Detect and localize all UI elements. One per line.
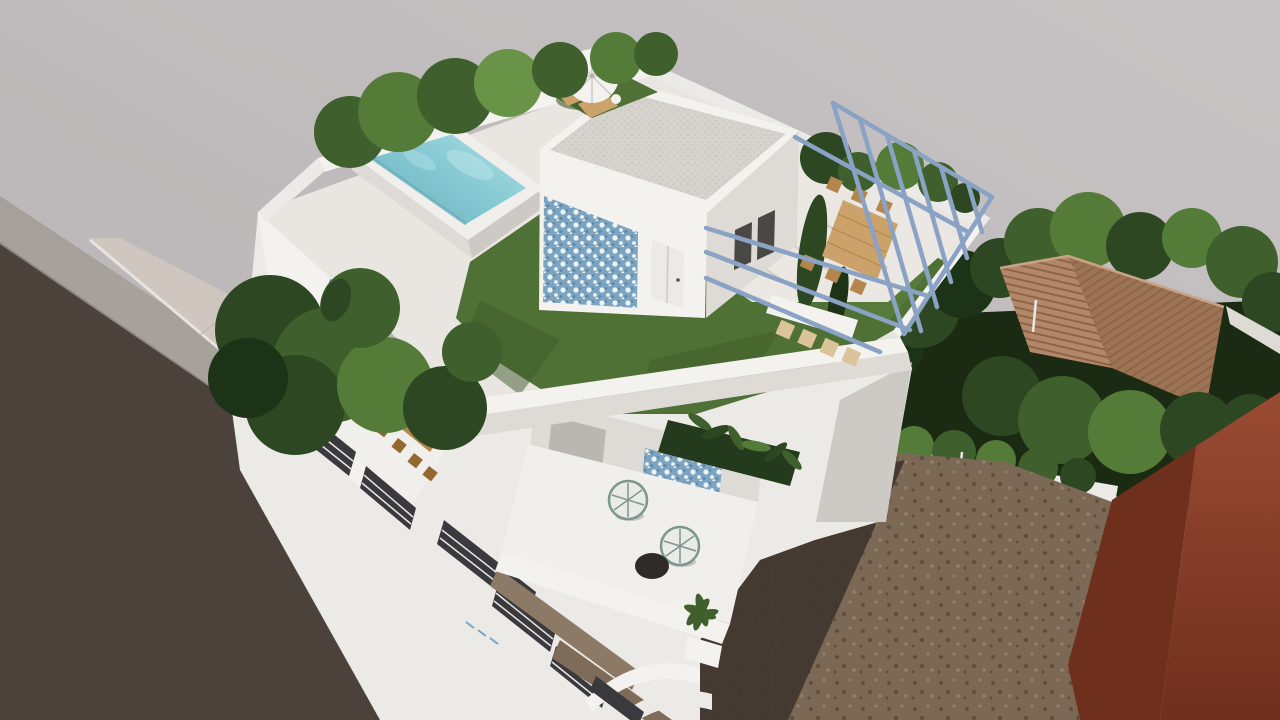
tree-canopy: [1088, 390, 1172, 474]
door-seam: [667, 246, 668, 303]
tree-canopy: [442, 322, 502, 382]
door-handle: [676, 278, 680, 282]
tree-canopy: [532, 42, 588, 98]
lounge-side-table: [611, 94, 621, 104]
round-side-table: [635, 553, 669, 579]
architectural-render-viewport: [0, 0, 1280, 720]
tree-canopy: [208, 338, 288, 418]
tree-canopy: [634, 32, 678, 76]
penthouse-right-opening: [757, 210, 775, 260]
tree-canopy: [474, 49, 542, 117]
tree-canopy: [590, 32, 642, 84]
villa-aerial-render: [0, 0, 1280, 720]
acapulco-chair: [609, 481, 647, 521]
